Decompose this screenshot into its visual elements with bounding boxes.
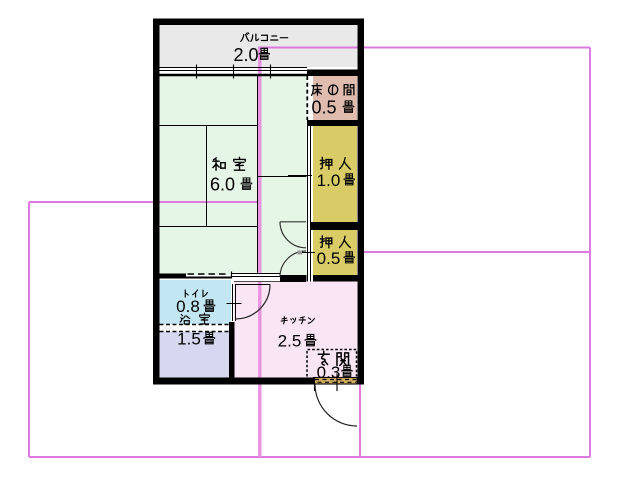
svg-text:2.5: 2.5 (278, 332, 302, 351)
svg-text:0.5: 0.5 (317, 249, 341, 268)
svg-text:0.5: 0.5 (311, 98, 336, 118)
svg-text:0.8: 0.8 (176, 297, 200, 316)
svg-text:6.0: 6.0 (210, 175, 235, 195)
svg-text:1.5: 1.5 (177, 330, 201, 349)
svg-text:0.3: 0.3 (317, 363, 341, 382)
svg-text:2.0: 2.0 (233, 45, 258, 65)
svg-text:1.0: 1.0 (317, 171, 341, 190)
